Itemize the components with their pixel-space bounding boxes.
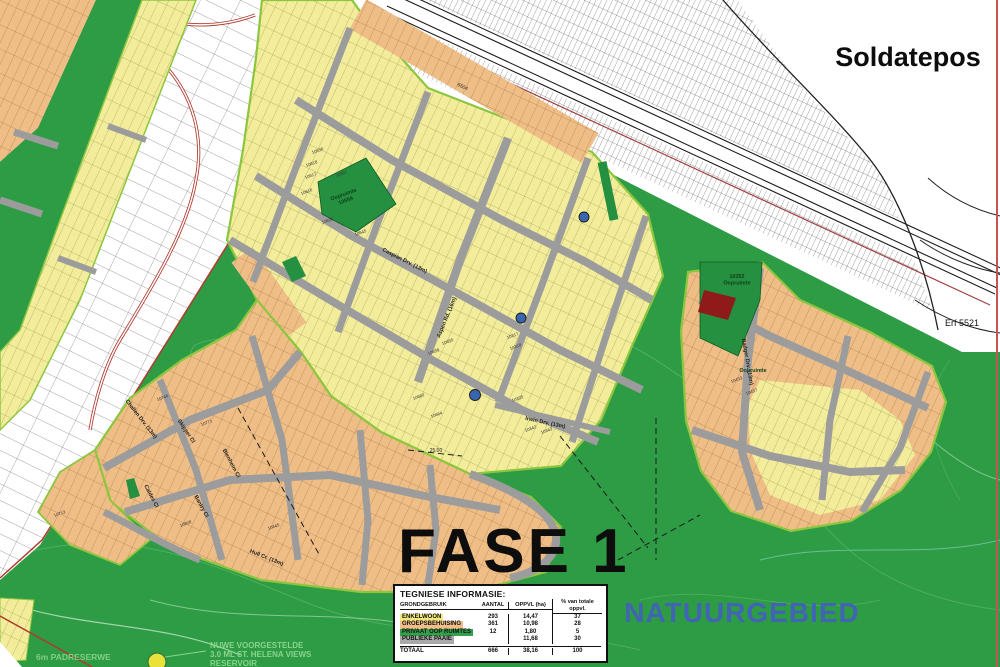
open-space-label: Oopruimte [739, 368, 766, 374]
total-oppvl: 38,16 [508, 648, 552, 656]
table-body: ENKELWOON29314,4737GROEPSBEHUISING36110,… [400, 614, 601, 644]
soldatepos-label: Soldatepos [835, 42, 981, 72]
landuse-label: ENKELWOON [400, 614, 443, 622]
technical-info-table: TEGNIESE INFORMASIE: GRONDGEBRUIK AANTAL… [393, 584, 608, 663]
table-header-row: GRONDGEBRUIK AANTAL OPPVL (ha) % van tot… [400, 599, 601, 614]
padreserwe-label: 6m PADRESERWE [36, 652, 111, 662]
reservoir-note-line3: RESERVOIR [210, 659, 257, 667]
total-pct: 100 [552, 648, 602, 656]
table-row: PUBLIEKE PAAIE11,6830 [400, 636, 601, 644]
total-label: TOTAAL [400, 648, 478, 656]
col-percent: % van totale oppvl. [552, 599, 602, 614]
table-total-row: TOTAAL 666 38,16 100 [400, 646, 601, 656]
roundabout-circle [470, 390, 481, 401]
reservoir-note-line1: NUWE VOORGESTELDE [210, 641, 304, 650]
dimension-label: 25.00 [430, 448, 443, 454]
fase1-title: FASE 1 [398, 517, 630, 586]
landuse-label: PUBLIEKE PAAIE [400, 636, 454, 644]
township-plan: FASE 1 Soldatepos NATUURGEBIED Erf 5521 … [0, 0, 1000, 667]
col-grondgebruik: GRONDGEBRUIK [400, 602, 478, 610]
table-title: TEGNIESE INFORMASIE: [400, 589, 601, 599]
reservoir-symbol [148, 653, 166, 667]
col-aantal: AANTAL [478, 602, 508, 610]
erf-5521-label: Erf 5521 [945, 318, 979, 328]
natuurgebied-label: NATUURGEBIED [624, 597, 859, 628]
total-aantal: 666 [478, 648, 508, 656]
plan-canvas: FASE 1 Soldatepos NATUURGEBIED Erf 5521 … [0, 0, 1000, 667]
table-row: PRIVAAT OOP RUIMTES121,805 [400, 629, 601, 637]
landuse-label: GROEPSBEHUISING [400, 621, 463, 629]
table-row: ENKELWOON29314,4737 [400, 614, 601, 622]
landuse-label: PRIVAAT OOP RUIMTES [400, 629, 473, 637]
table-row: GROEPSBEHUISING36110,9828 [400, 621, 601, 629]
reservoir-note-line2: 3.0 ML ST. HELENA VIEWS [210, 650, 312, 659]
roundabout-circle [516, 313, 526, 323]
roundabout-circle [579, 212, 589, 222]
col-oppvl: OPPVL (ha) [508, 602, 552, 610]
